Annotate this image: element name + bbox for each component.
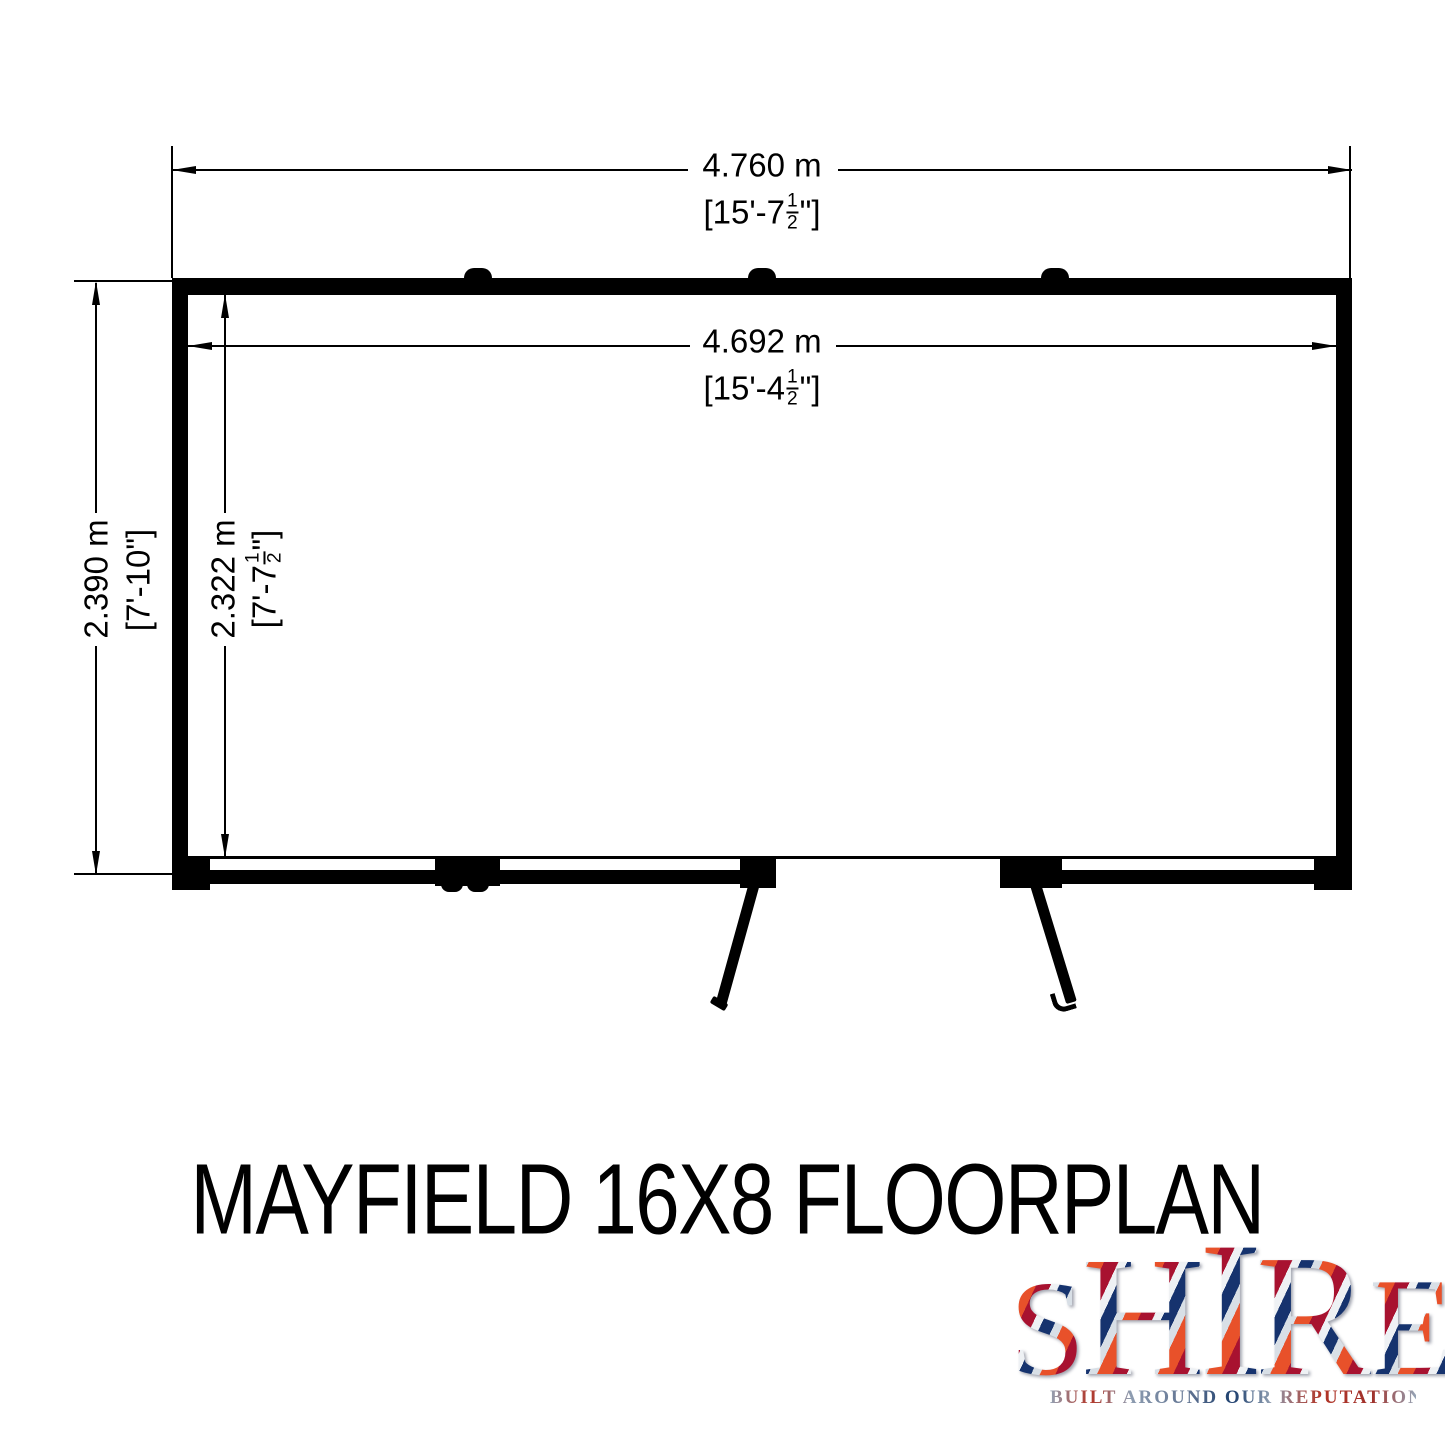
dimension-label-outer-depth-imperial: [7'-10"]	[122, 527, 155, 631]
window-panel-right	[1062, 870, 1314, 884]
logo-letter: S	[1010, 1261, 1086, 1397]
roof-joint-marker	[464, 268, 492, 278]
arrowhead-right	[1328, 166, 1352, 174]
logo-letter: E	[1369, 1258, 1445, 1398]
imperial-pre: [15'-7	[703, 196, 785, 229]
wall-left	[172, 278, 188, 890]
logo-letter: I	[1199, 1213, 1263, 1406]
imperial-post: "]	[800, 196, 821, 229]
arrowhead-left	[172, 166, 196, 174]
fraction-denominator: 2	[787, 213, 798, 233]
fraction-numerator: 1	[786, 367, 799, 389]
dimension-label-inner-depth-metric: 2.322 m	[207, 519, 240, 638]
imperial-pre: [7'-7	[248, 565, 281, 628]
metric-value: 4.692 m	[702, 325, 821, 358]
wall-bottom-joint	[435, 858, 500, 886]
logo-tagline: BUILT AROUND OUR REPUTATION	[1050, 1387, 1416, 1409]
wall-bottom-corner-right	[1314, 856, 1352, 890]
fraction: 12	[786, 191, 799, 232]
imperial-pre: [7'-10"]	[122, 529, 155, 631]
dimension-line-inner-width	[836, 345, 1336, 347]
door-handle	[1050, 988, 1077, 1015]
arrowhead-up	[92, 281, 100, 305]
fraction-denominator: 2	[787, 389, 798, 409]
logo-letter: R	[1255, 1229, 1371, 1403]
extension-line	[74, 280, 172, 282]
imperial-pre: [15'-4	[703, 372, 785, 405]
fraction: 12	[786, 367, 799, 408]
joint-marker	[441, 884, 463, 892]
fraction: 12	[243, 552, 284, 565]
dimension-label-outer-depth-metric: 2.390 m	[80, 519, 113, 638]
floorplan-canvas: 4.760 m [15'-712"] 4.692 m [15'-412"] 2.…	[0, 0, 1445, 1445]
door-leaf-left	[715, 871, 762, 1007]
wall-right	[1336, 278, 1352, 890]
imperial-post: "]	[800, 372, 821, 405]
dimension-label-outer-width-metric: 4.760 m	[702, 149, 821, 182]
metric-value: 2.322 m	[207, 519, 240, 638]
door-leaf-end-cap	[710, 996, 729, 1012]
extension-line	[74, 873, 172, 875]
metric-value: 2.390 m	[80, 519, 113, 638]
window-panel-left	[210, 870, 435, 884]
fraction-numerator: 1	[243, 552, 265, 565]
roof-joint-marker	[748, 268, 776, 278]
arrowhead-up	[221, 294, 229, 318]
dimension-line-outer-depth	[95, 646, 97, 875]
door-leaf-right	[1027, 873, 1077, 1004]
logo-letter: H	[1081, 1231, 1205, 1402]
joint-marker	[467, 884, 489, 892]
dimension-label-outer-width-imperial: [15'-712"]	[703, 191, 820, 232]
dimension-line-inner-width	[188, 345, 690, 347]
dimension-line-outer-width	[172, 169, 688, 171]
roof-joint-marker	[1041, 268, 1069, 278]
metric-value: 4.760 m	[702, 149, 821, 182]
fraction-denominator: 2	[265, 553, 285, 564]
wall-top	[172, 278, 1352, 295]
arrowhead-left	[188, 342, 212, 350]
wall-bottom-corner-left	[172, 856, 210, 890]
window-panel-middle	[500, 870, 740, 884]
shire-logo: SHIRE	[1050, 1213, 1414, 1406]
imperial-post: "]	[248, 530, 281, 551]
dimension-label-inner-depth-imperial: [7'-712"]	[243, 530, 284, 629]
dimension-line-outer-depth	[95, 283, 97, 513]
arrowhead-down	[92, 851, 100, 875]
dimension-label-inner-width-imperial: [15'-412"]	[703, 367, 820, 408]
dimension-line-outer-width	[838, 169, 1352, 171]
arrowhead-down	[221, 834, 229, 858]
dimension-line-inner-depth	[224, 294, 226, 513]
dimension-label-inner-width-metric: 4.692 m	[702, 325, 821, 358]
fraction-numerator: 1	[786, 191, 799, 213]
dimension-line-inner-depth	[224, 646, 226, 858]
arrowhead-right	[1312, 342, 1336, 350]
